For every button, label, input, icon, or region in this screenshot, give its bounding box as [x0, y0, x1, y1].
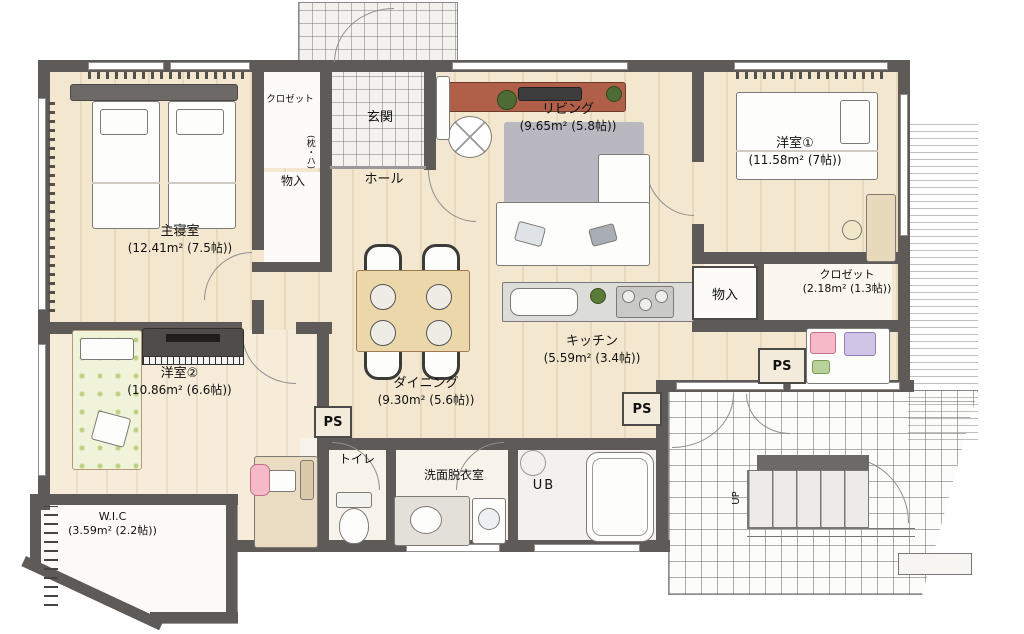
wic-area: (3.59m² (2.2帖))	[30, 524, 195, 538]
kitchen-name: キッチン	[502, 334, 682, 351]
label-living: リビング (9.65m² (5.8帖))	[478, 102, 658, 134]
kitchen-sink	[510, 288, 578, 316]
ps-box-2: PS	[622, 392, 662, 426]
label-wic: W.I.C (3.59m² (2.2帖))	[30, 510, 195, 539]
western1-area: (11.58m² (7帖))	[700, 153, 890, 169]
entrance-step-line	[330, 166, 426, 169]
western1-stool	[842, 220, 862, 240]
label-entrance: 玄関	[348, 110, 412, 126]
window-living-top	[452, 62, 628, 70]
label-toilet: トイレ	[322, 452, 392, 466]
ps-box-3: PS	[758, 348, 806, 384]
toilet-tank	[336, 492, 372, 508]
ps-label-3: PS	[773, 359, 792, 374]
alcove-item-pink	[810, 332, 836, 354]
label-western1: 洋室① (11.58m² (7帖))	[700, 136, 890, 168]
plant-right	[606, 86, 622, 102]
ps-label-1: PS	[324, 415, 343, 430]
western2-area: (10.86m² (6.6帖))	[82, 383, 277, 399]
wash-sink	[410, 506, 442, 534]
closet1-name: クロゼット	[752, 268, 942, 282]
sofa-chaise	[598, 154, 650, 206]
label-master: 主寝室 (12.41m² (7.5帖))	[95, 224, 265, 256]
dining-area: (9.30m² (5.6帖))	[342, 393, 510, 409]
window-bath-bottom	[534, 544, 640, 552]
wall-closet-col-left-b	[252, 300, 264, 334]
label-unit-bath: UB	[524, 478, 564, 494]
burner-3	[655, 290, 668, 303]
storage2-box: 物入	[692, 266, 758, 320]
stairs-landing	[757, 455, 869, 470]
master-pillow-1	[100, 109, 148, 135]
curtain-master-left	[48, 98, 55, 312]
master-headboard	[70, 84, 238, 101]
wall-wic-bottom	[150, 612, 238, 623]
stairs-up-label: UP	[731, 483, 743, 513]
ps-box-1: PS	[314, 406, 352, 438]
ps-label-2: PS	[633, 402, 652, 417]
western2-pillow	[80, 338, 134, 360]
kitchen-area: (5.59m² (3.4帖))	[502, 351, 682, 367]
stairs-lower-rail	[747, 528, 915, 537]
label-kitchen: キッチン (5.59m² (3.4帖))	[502, 334, 682, 366]
window-right	[900, 94, 908, 236]
place-setting-2	[426, 284, 452, 310]
window-master-left	[38, 98, 46, 310]
alcove-item-lavender	[844, 332, 876, 356]
window-master-top-2	[170, 62, 250, 70]
label-closet-top-note: (枕・ハ)	[304, 112, 315, 192]
tv	[518, 87, 582, 101]
toilet-bowl	[339, 508, 369, 544]
piano-keys	[142, 356, 244, 365]
wall-western2-top-right	[296, 322, 332, 334]
shower-head	[520, 450, 546, 476]
western1-desk	[866, 194, 896, 262]
label-washroom: 洗面脱衣室	[398, 468, 510, 482]
dining-name: ダイニング	[342, 376, 510, 393]
burner-2	[639, 298, 652, 311]
washing-machine-drum	[478, 508, 500, 530]
window-master-top-1	[88, 62, 164, 70]
living-name: リビング	[478, 102, 658, 119]
label-dining: ダイニング (9.30m² (5.6帖))	[342, 376, 510, 408]
kitchen-plant	[590, 288, 606, 304]
master-blanket-line-2	[168, 182, 236, 184]
window-western1-top	[734, 62, 888, 70]
curtain-master-top	[88, 72, 246, 79]
closet1-area: (2.18m² (1.3帖))	[752, 282, 942, 296]
curtain-western1-top	[736, 72, 886, 79]
desk-chair-pink	[250, 464, 270, 496]
floor-plan: UP PS PS PS 物入 主寝室 (12.41m² (7.5帖)) リビング…	[0, 0, 1024, 634]
master-pillow-2	[176, 109, 224, 135]
storage2-label: 物入	[712, 284, 738, 303]
piano-music-stand	[166, 334, 220, 342]
wall-wic-top	[30, 494, 238, 505]
label-western2: 洋室② (10.86m² (6.6帖))	[82, 366, 277, 398]
wall-wash-right	[508, 448, 518, 544]
stairs-steps	[747, 470, 869, 528]
master-name: 主寝室	[95, 224, 265, 241]
wall-wic-right	[226, 494, 237, 623]
label-closet-top: クロゼット	[258, 94, 322, 105]
alcove-item-green	[812, 360, 830, 374]
western2-name: 洋室②	[82, 366, 277, 383]
desk-shelf	[300, 460, 314, 500]
wall-storage1-bottom	[252, 262, 332, 272]
master-blanket-line-1	[92, 182, 160, 184]
living-area: (9.65m² (5.8帖))	[478, 119, 658, 135]
window-western2-left	[38, 344, 46, 476]
burner-1	[622, 290, 635, 303]
bathtub-inner	[592, 458, 648, 536]
master-area: (12.41m² (7.5帖))	[95, 241, 265, 257]
wall-entrance-right	[424, 60, 436, 170]
place-setting-1	[370, 284, 396, 310]
label-hall: ホール	[338, 172, 430, 188]
label-closet1: クロゼット (2.18m² (1.3帖))	[752, 268, 942, 297]
shoe-cabinet	[436, 76, 450, 140]
wic-name: W.I.C	[30, 510, 195, 524]
place-setting-3	[370, 320, 396, 346]
western1-name: 洋室①	[700, 136, 890, 153]
place-setting-4	[426, 320, 452, 346]
stairs-stoop	[898, 553, 972, 575]
